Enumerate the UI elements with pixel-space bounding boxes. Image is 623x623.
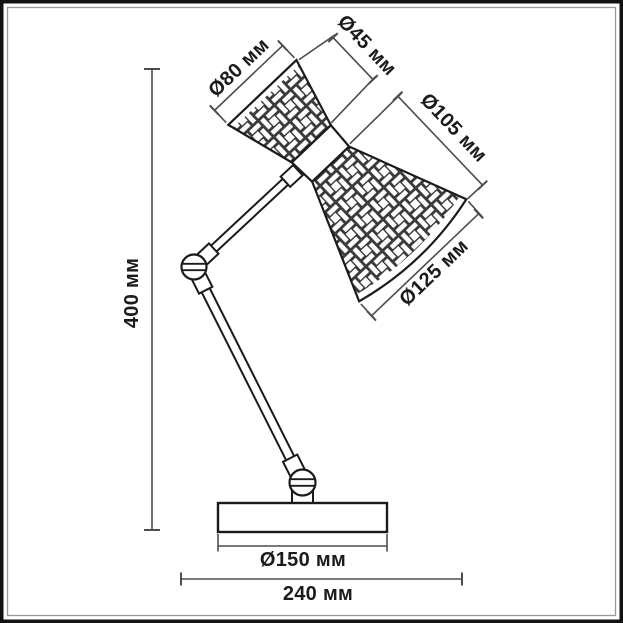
dim-label-w240: 240 мм — [283, 583, 353, 605]
drawing-canvas: Ø80 мм Ø45 мм Ø105 мм — [0, 0, 623, 623]
dim-label-d150: Ø150 мм — [260, 549, 346, 571]
base-joint-screw — [290, 470, 316, 496]
dim-label-h400: 400 мм — [121, 258, 143, 328]
elbow-joint-screw — [182, 255, 207, 280]
lamp-base — [218, 503, 387, 532]
technical-drawing: Ø80 мм Ø45 мм Ø105 мм — [0, 0, 623, 623]
